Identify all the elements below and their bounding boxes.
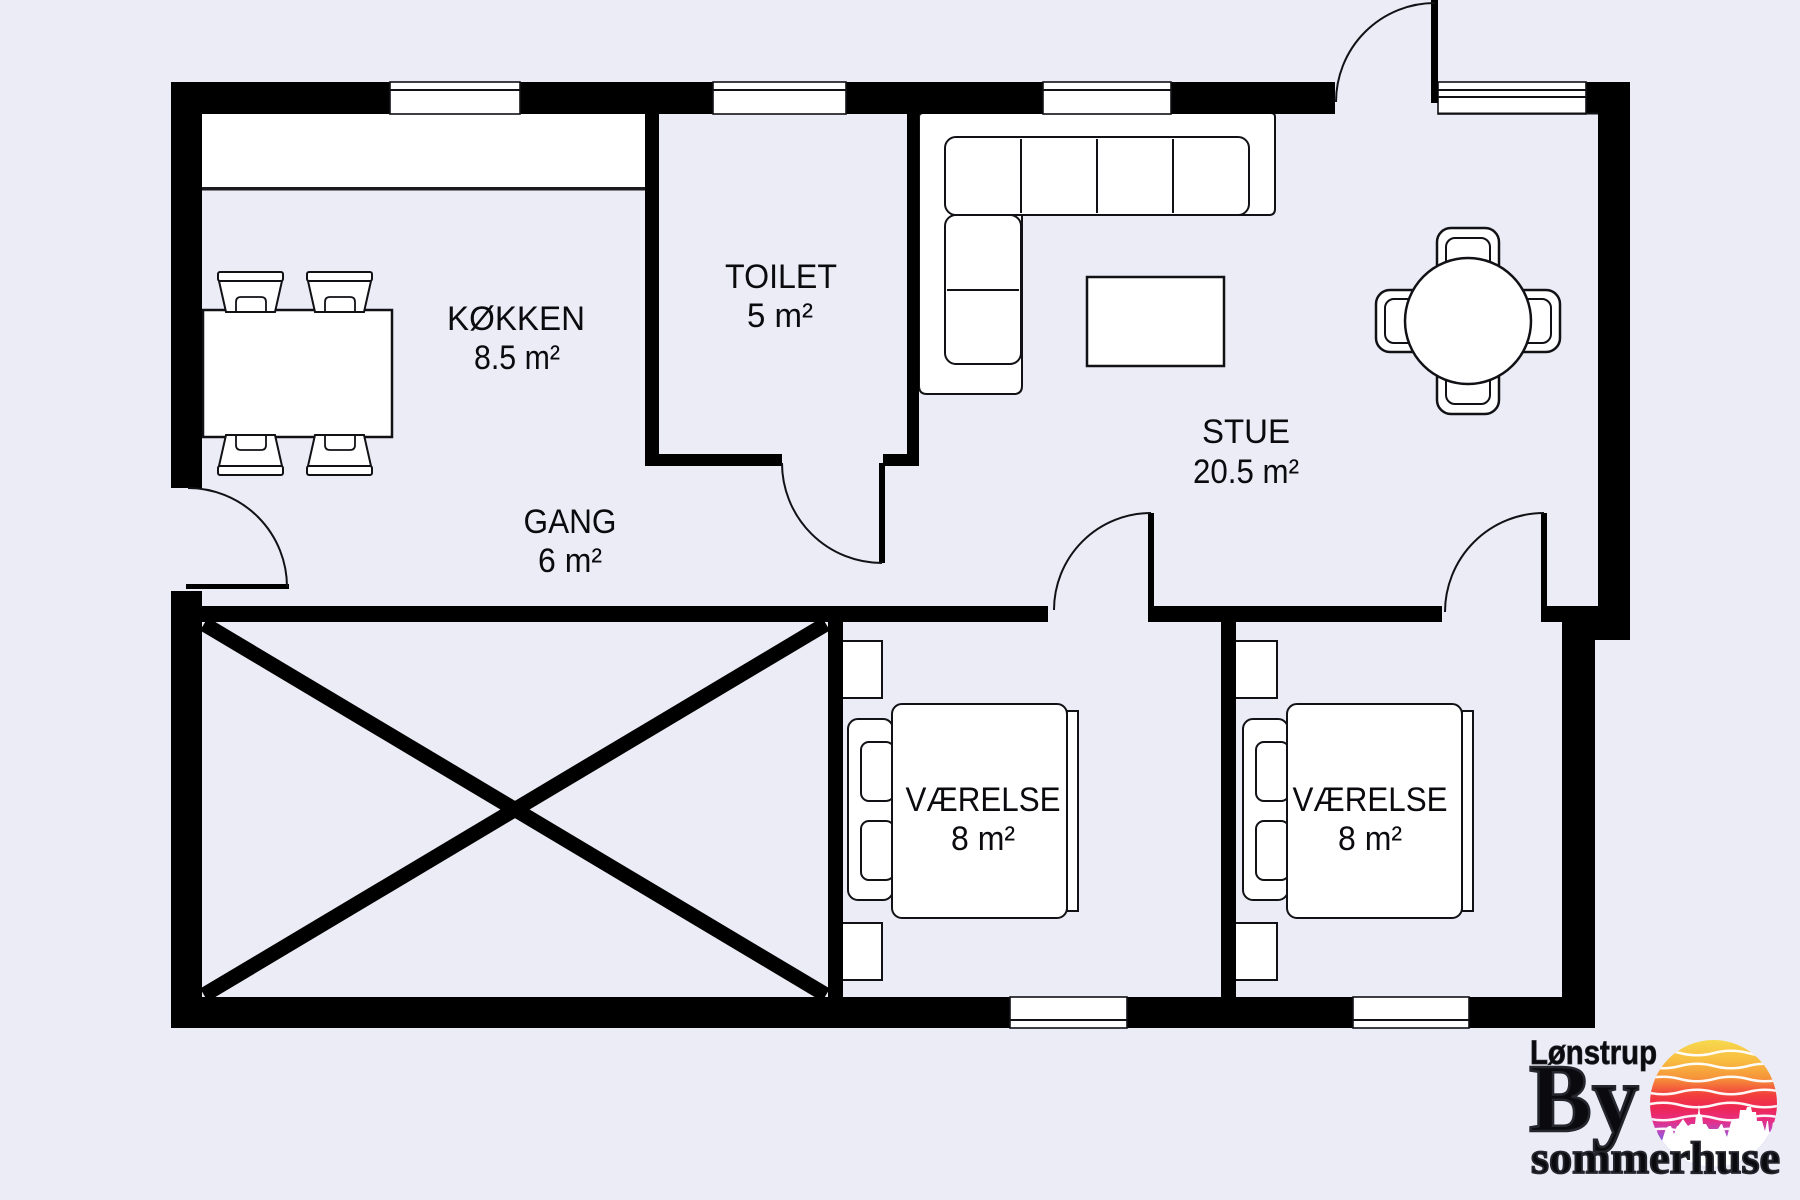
svg-text:VÆRELSE: VÆRELSE (1293, 781, 1448, 819)
svg-text:8 m²: 8 m² (951, 820, 1015, 858)
svg-text:8 m²: 8 m² (1338, 820, 1402, 858)
svg-text:6 m²: 6 m² (538, 542, 602, 580)
svg-text:sommerhuse: sommerhuse (1531, 1133, 1780, 1183)
svg-text:8.5 m²: 8.5 m² (474, 339, 560, 377)
svg-text:20.5 m²: 20.5 m² (1193, 453, 1299, 491)
svg-text:KØKKEN: KØKKEN (447, 300, 585, 338)
svg-text:5 m²: 5 m² (747, 297, 813, 335)
svg-text:GANG: GANG (524, 503, 617, 541)
svg-text:VÆRELSE: VÆRELSE (906, 781, 1061, 819)
svg-text:TOILET: TOILET (725, 258, 837, 296)
svg-text:STUE: STUE (1202, 413, 1290, 451)
